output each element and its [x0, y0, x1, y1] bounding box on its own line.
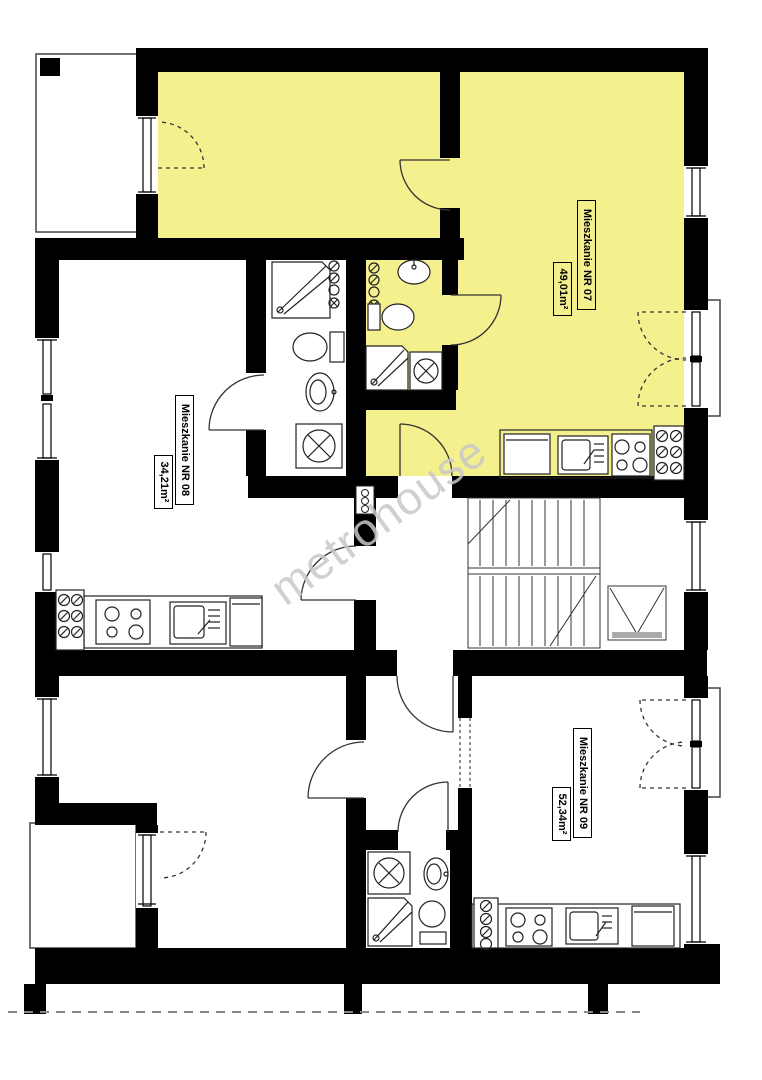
pillar — [24, 984, 46, 1014]
balcony-right-upper — [706, 300, 720, 416]
stove-icon — [506, 908, 552, 946]
door-bathroom-08 — [209, 375, 264, 430]
window — [684, 854, 708, 944]
washing-machine-icon — [368, 852, 410, 894]
apartment-09-name-label: Mieszkanie NR 09 — [573, 728, 592, 838]
kitchen-sink-icon — [558, 436, 608, 474]
stove-icon — [612, 434, 650, 476]
bathroom-08 — [272, 261, 344, 468]
cabinet-icon — [56, 590, 84, 650]
washing-machine-icon — [296, 424, 342, 468]
window — [35, 697, 59, 777]
apartment-09-area-label: 52,34m² — [552, 787, 571, 841]
pillar — [588, 984, 608, 1014]
apartment-08-name-label: Mieszkanie NR 08 — [175, 395, 194, 505]
washing-machine-icon — [410, 352, 442, 390]
floorplan: Mieszkanie NR 07 49,01m² Mieszkanie NR 0… — [0, 0, 762, 1080]
stair-treads — [480, 500, 584, 646]
kitchen-09 — [472, 898, 680, 950]
staircase — [468, 498, 600, 648]
sink-icon — [398, 260, 430, 284]
balcony-bottom-left — [30, 823, 136, 948]
balcony-right-lower — [706, 688, 720, 797]
window — [684, 166, 708, 218]
door-bathroom-09 — [398, 782, 448, 832]
balcony-door — [136, 833, 158, 908]
elevator-shaft — [608, 586, 666, 640]
window — [684, 520, 708, 592]
toilet-icon — [368, 304, 414, 330]
door-bedroom-09 — [308, 742, 364, 798]
cabinet-icon — [654, 426, 684, 480]
bathroom-09 — [368, 852, 448, 946]
toilet-icon — [293, 332, 344, 362]
kitchen-sink-icon — [170, 602, 226, 644]
window-double — [35, 338, 59, 460]
shower-icon — [366, 346, 408, 390]
door-entrance-09 — [397, 676, 453, 732]
stair-break-line — [550, 576, 596, 646]
stove-icon — [96, 600, 150, 644]
apartment-08-area-label: 34,21m² — [154, 455, 173, 509]
window — [136, 116, 158, 194]
window — [35, 552, 59, 592]
balcony-top-left — [36, 54, 140, 232]
stair-break-line — [468, 500, 510, 544]
balcony-pillar — [40, 58, 60, 76]
shower-icon — [272, 262, 330, 318]
kitchen-08 — [56, 590, 262, 650]
shower-icon — [368, 898, 412, 946]
kitchen-sink-icon — [566, 908, 618, 944]
balcony-door-double — [684, 698, 708, 790]
balcony-door-double — [684, 310, 708, 408]
cabinet-icon — [474, 898, 498, 950]
apartment-07-name-label: Mieszkanie NR 07 — [577, 200, 596, 310]
apartment-07-area-label: 49,01m² — [553, 262, 572, 316]
sink-icon — [306, 373, 336, 411]
toilet-icon — [419, 901, 446, 944]
pillar — [344, 984, 362, 1014]
sink-icon — [424, 858, 448, 890]
opening-dashed — [460, 718, 470, 788]
